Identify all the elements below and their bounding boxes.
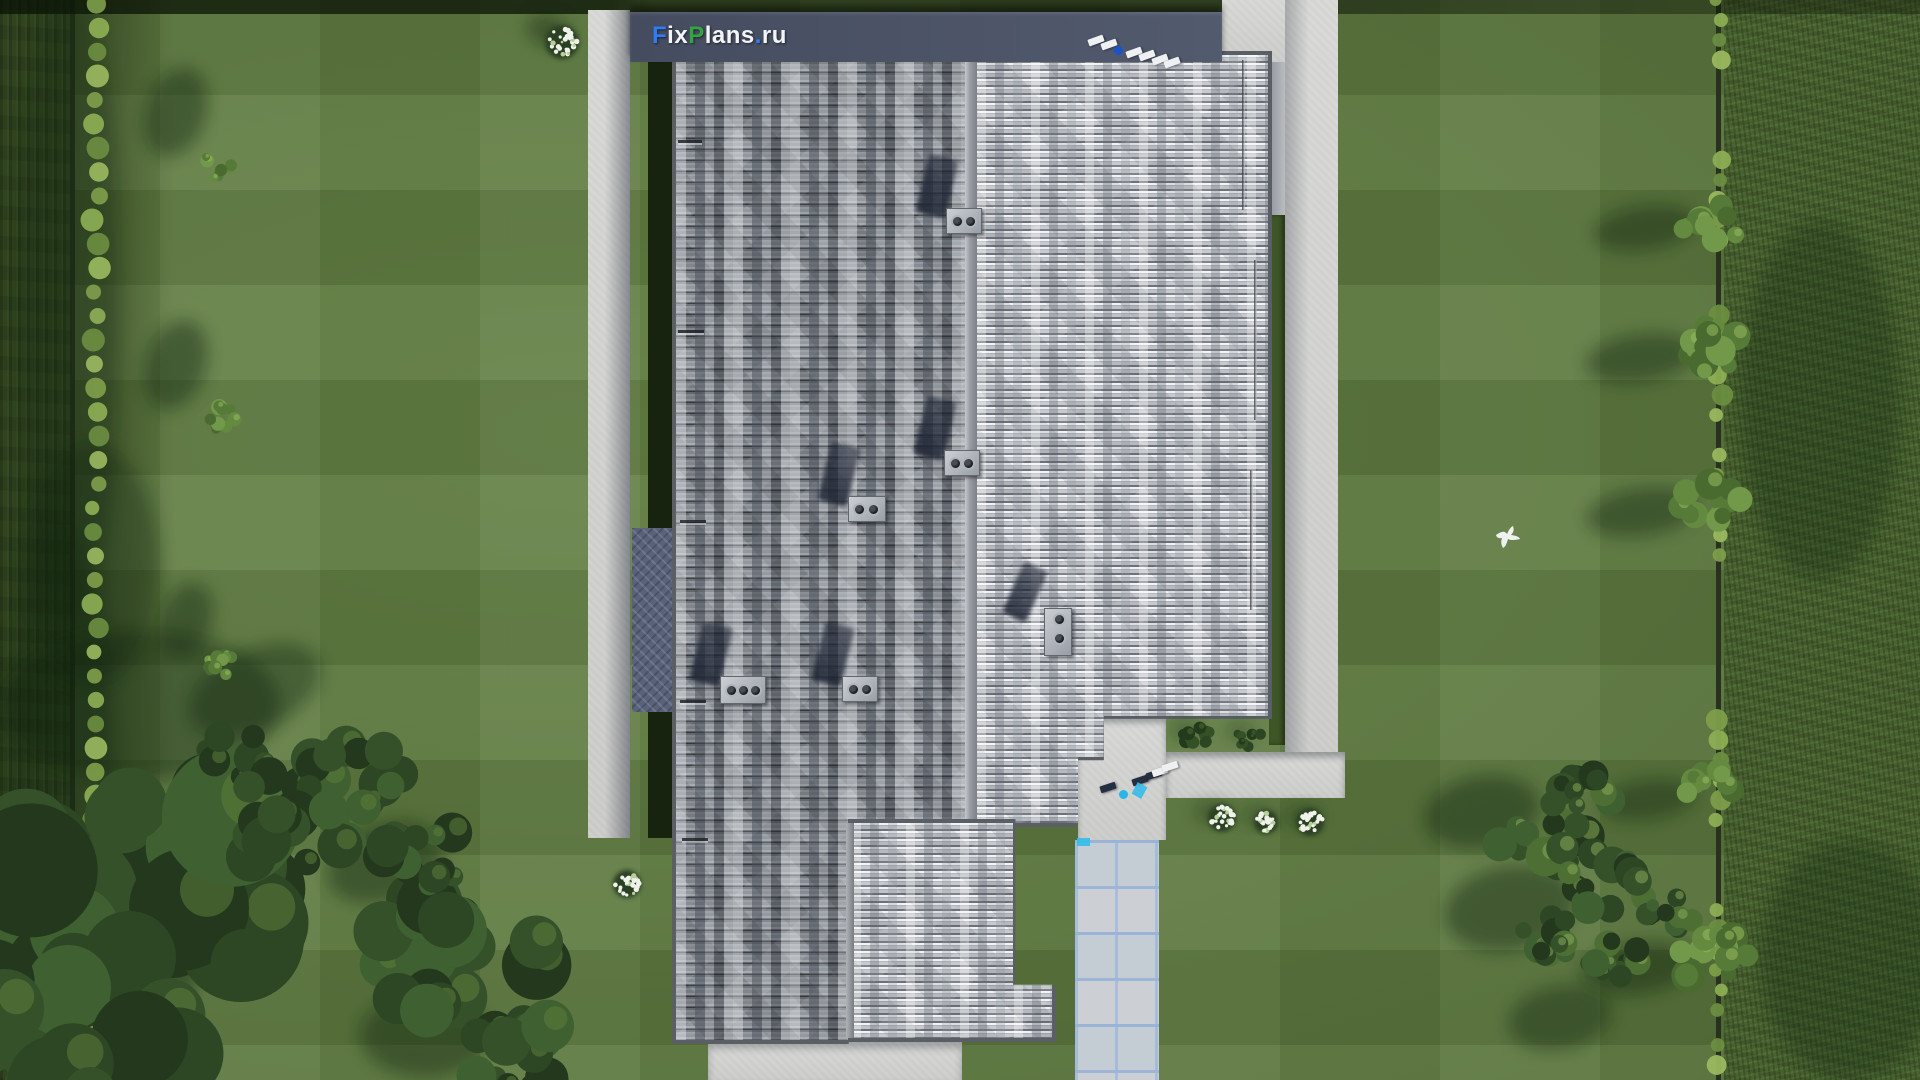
chimney-vent xyxy=(944,450,980,476)
vent-pipe-icon xyxy=(964,215,977,228)
left-walkway xyxy=(588,10,630,838)
roof-seam-line xyxy=(1242,60,1245,210)
right-roof-ribbed xyxy=(977,55,1268,823)
chimney-vent xyxy=(842,676,878,702)
fixplans-watermark: FixPlans.ru xyxy=(652,22,787,50)
left-boundary-shadow xyxy=(0,0,175,1080)
chimney-vent xyxy=(720,676,766,704)
chimney-vent xyxy=(848,496,886,522)
roof-seam-line xyxy=(1250,470,1253,610)
roof-seam-line xyxy=(1254,260,1257,420)
side-path xyxy=(1166,752,1345,798)
vent-pipe-icon xyxy=(1053,613,1066,626)
vent-pipe-icon xyxy=(867,503,880,516)
right-fence xyxy=(1716,0,1721,1080)
watermark-segment: ix xyxy=(667,22,688,49)
pool-dot xyxy=(1119,790,1128,799)
paver-walkway xyxy=(1075,840,1159,1080)
watermark-segment: lans xyxy=(705,22,755,49)
vent-pipe-icon xyxy=(749,684,762,697)
vent-pipe-icon xyxy=(1053,632,1066,645)
aerial-house-render: FixPlans.ru xyxy=(0,0,1920,1080)
right-meadow xyxy=(1724,0,1920,1080)
roof-step-line xyxy=(680,520,706,523)
watermark-segment: P xyxy=(688,22,705,49)
chimney-vent xyxy=(946,208,982,234)
vent-pipe-icon xyxy=(949,457,962,470)
vent-pipe-icon xyxy=(853,503,866,516)
vent-pipe-icon xyxy=(847,683,860,696)
pool-dot xyxy=(1114,46,1123,55)
watermark-segment: ru xyxy=(762,22,787,49)
vent-pipe-icon xyxy=(951,215,964,228)
chimney-vent xyxy=(1044,608,1072,656)
vent-pipe-icon xyxy=(860,683,873,696)
driveway xyxy=(708,1042,962,1080)
right-walkway xyxy=(1285,0,1338,798)
roof-ridge xyxy=(965,55,977,823)
garage-roof-ridge xyxy=(846,823,854,1038)
watermark-segment: . xyxy=(755,22,762,49)
watermark-segment: F xyxy=(652,22,667,49)
shaded-deck xyxy=(632,528,678,712)
roof-step-line xyxy=(680,700,706,703)
vent-pipe-icon xyxy=(962,457,975,470)
roof-step-line xyxy=(682,838,708,841)
roof-step-line xyxy=(678,140,702,143)
water-accent xyxy=(1077,838,1090,846)
roof-step-line xyxy=(678,330,704,333)
